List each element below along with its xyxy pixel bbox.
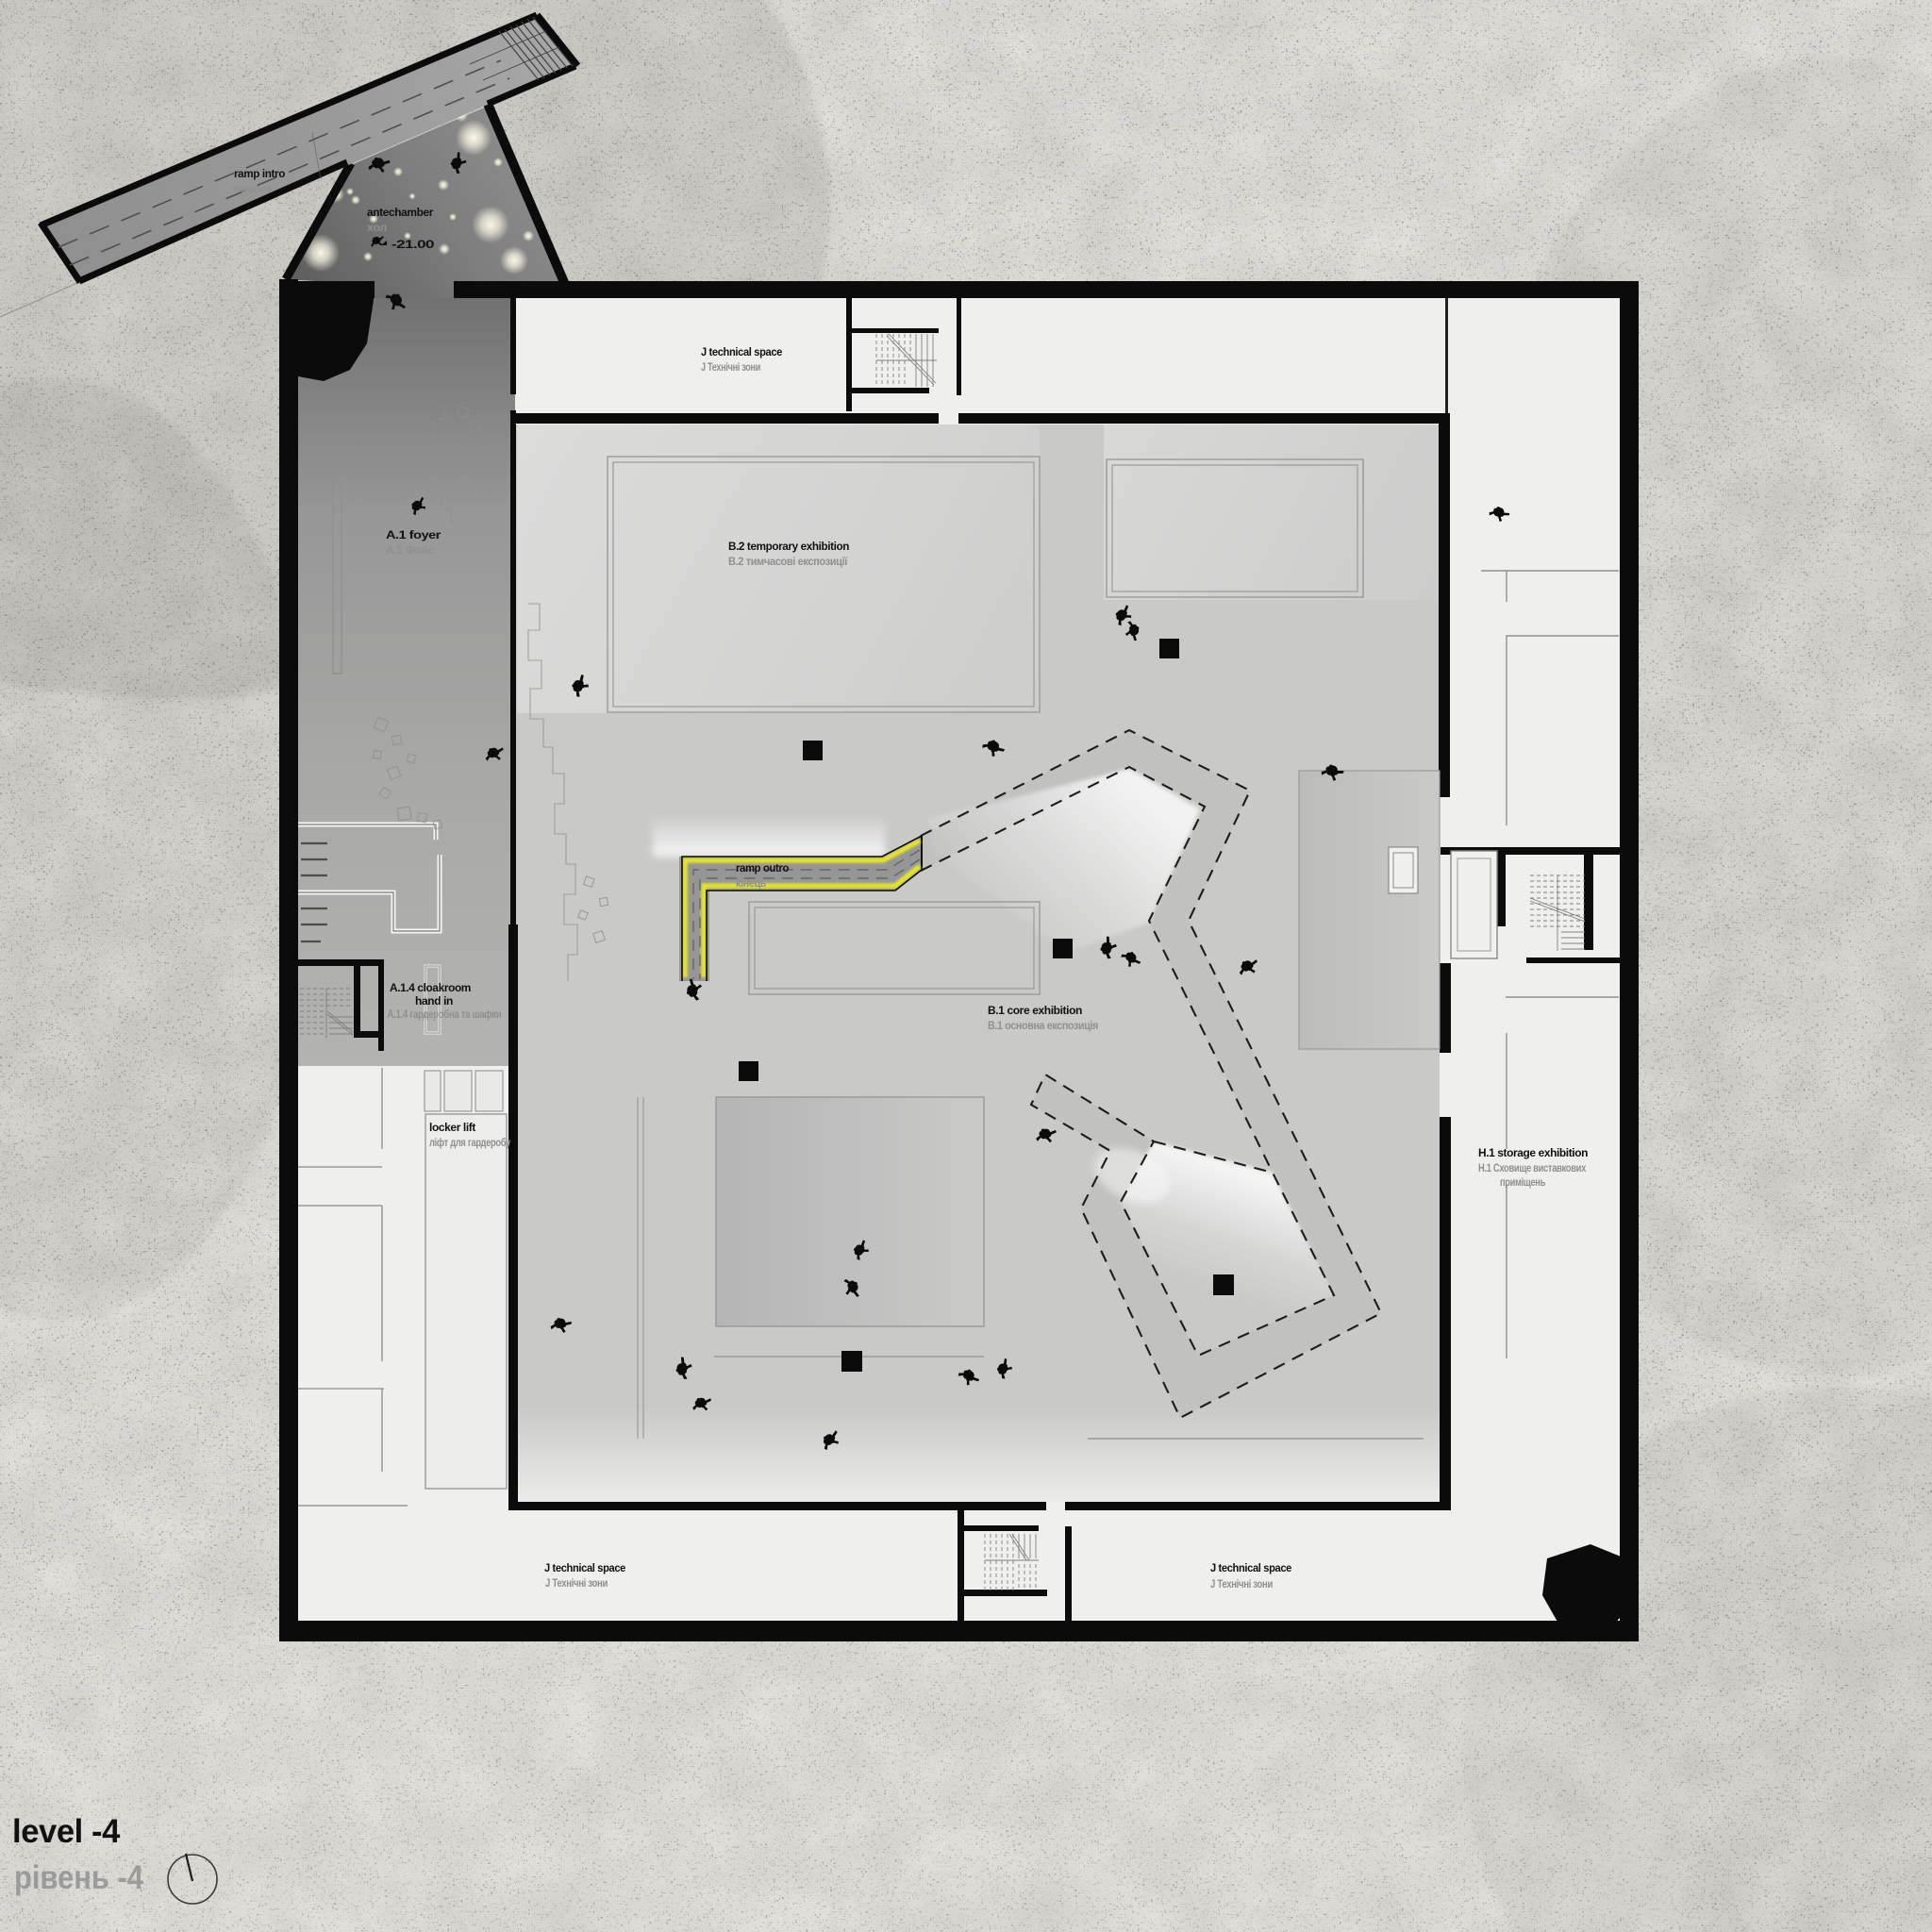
svg-text:antechamber: antechamber xyxy=(367,206,434,219)
svg-text:B.1 основна експозиція: B.1 основна експозиція xyxy=(988,1019,1098,1032)
svg-text:J technical space: J technical space xyxy=(544,1561,625,1574)
svg-text:level -4: level -4 xyxy=(12,1813,121,1850)
svg-text:початок: початок xyxy=(234,182,273,195)
svg-text:A.1 Фойє: A.1 Фойє xyxy=(386,543,435,557)
svg-text:B.1 core exhibition: B.1 core exhibition xyxy=(988,1004,1082,1017)
svg-text:ліфт для гардеробу: ліфт для гардеробу xyxy=(429,1136,511,1149)
svg-text:ramp outro: ramp outro xyxy=(736,861,790,874)
svg-text:рівень -4: рівень -4 xyxy=(14,1859,143,1896)
svg-text:J Технічні зони: J Технічні зони xyxy=(545,1576,608,1590)
svg-text:B.2 тимчасові експозиції: B.2 тимчасові експозиції xyxy=(728,555,848,568)
svg-text:J Технічні зони: J Технічні зони xyxy=(1210,1577,1273,1591)
svg-text:ramp intro: ramp intro xyxy=(234,167,286,180)
svg-text:H.1 Сховище виставкових: H.1 Сховище виставкових xyxy=(1478,1161,1587,1174)
svg-text:J Технічні зони: J Технічні зони xyxy=(701,360,760,374)
svg-text:J technical space: J technical space xyxy=(1210,1561,1291,1574)
svg-text:кінець: кінець xyxy=(736,876,766,890)
svg-text:locker lift: locker lift xyxy=(429,1121,475,1134)
svg-text:A.1 foyer: A.1 foyer xyxy=(386,528,441,541)
svg-text:приміщень: приміщень xyxy=(1500,1175,1545,1189)
svg-text:B.2 temporary exhibition: B.2 temporary exhibition xyxy=(728,540,849,553)
svg-text:J technical space: J technical space xyxy=(701,345,782,358)
svg-text:-21.00: -21.00 xyxy=(391,238,435,251)
svg-text:H.1 storage exhibition: H.1 storage exhibition xyxy=(1478,1146,1588,1159)
svg-text:hand in: hand in xyxy=(415,994,453,1008)
svg-text:хол: хол xyxy=(367,221,387,234)
svg-text:A.1.4 гардеробна та шафки: A.1.4 гардеробна та шафки xyxy=(388,1008,502,1021)
svg-text:A.1.4 cloakroom: A.1.4 cloakroom xyxy=(390,981,471,994)
